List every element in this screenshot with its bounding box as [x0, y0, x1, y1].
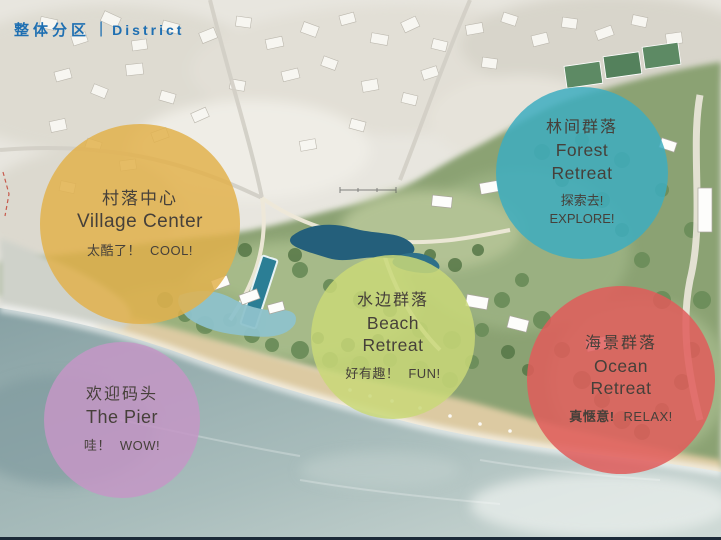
district-tagline: 探索去! EXPLORE!	[549, 193, 614, 228]
district-tagline: 哇！ WOW!	[84, 438, 160, 455]
district-name-en: Beach Retreat	[363, 312, 424, 358]
district-name-en: Ocean Retreat	[591, 355, 652, 401]
district-circle-village-center: 村落中心 Village Center 太酷了！ COOL!	[40, 124, 240, 324]
page-title-separator: |	[99, 20, 103, 38]
district-name-en: Village Center	[77, 210, 203, 235]
district-tagline: 太酷了！ COOL!	[87, 243, 193, 260]
district-name-zh: 欢迎码头	[86, 385, 158, 406]
district-circle-forest-retreat: 林间群落 Forest Retreat 探索去! EXPLORE!	[496, 87, 668, 259]
page-title-en: District	[112, 22, 184, 38]
district-tagline: 真惬意! RELAX!	[569, 409, 673, 426]
district-circle-beach-retreat: 水边群落 Beach Retreat 好有趣！ FUN!	[311, 255, 475, 419]
district-circle-the-pier: 欢迎码头 The Pier 哇！ WOW!	[44, 342, 200, 498]
district-name-en: The Pier	[86, 406, 158, 429]
district-name-zh: 林间群落	[546, 118, 618, 139]
page-title-zh: 整体分区	[14, 19, 90, 40]
district-name-zh: 水边群落	[357, 291, 429, 312]
district-name-zh: 村落中心	[102, 188, 178, 210]
district-tagline: 好有趣！ FUN!	[345, 366, 440, 383]
district-plan-slide: 整体分区 | District 村落中心 Village Center 太酷了！…	[0, 0, 721, 540]
page-title: 整体分区 | District	[14, 19, 184, 40]
district-name-en: Forest Retreat	[552, 139, 613, 185]
district-circle-ocean-retreat: 海景群落 Ocean Retreat 真惬意! RELAX!	[527, 286, 715, 474]
district-name-zh: 海景群落	[585, 334, 657, 355]
